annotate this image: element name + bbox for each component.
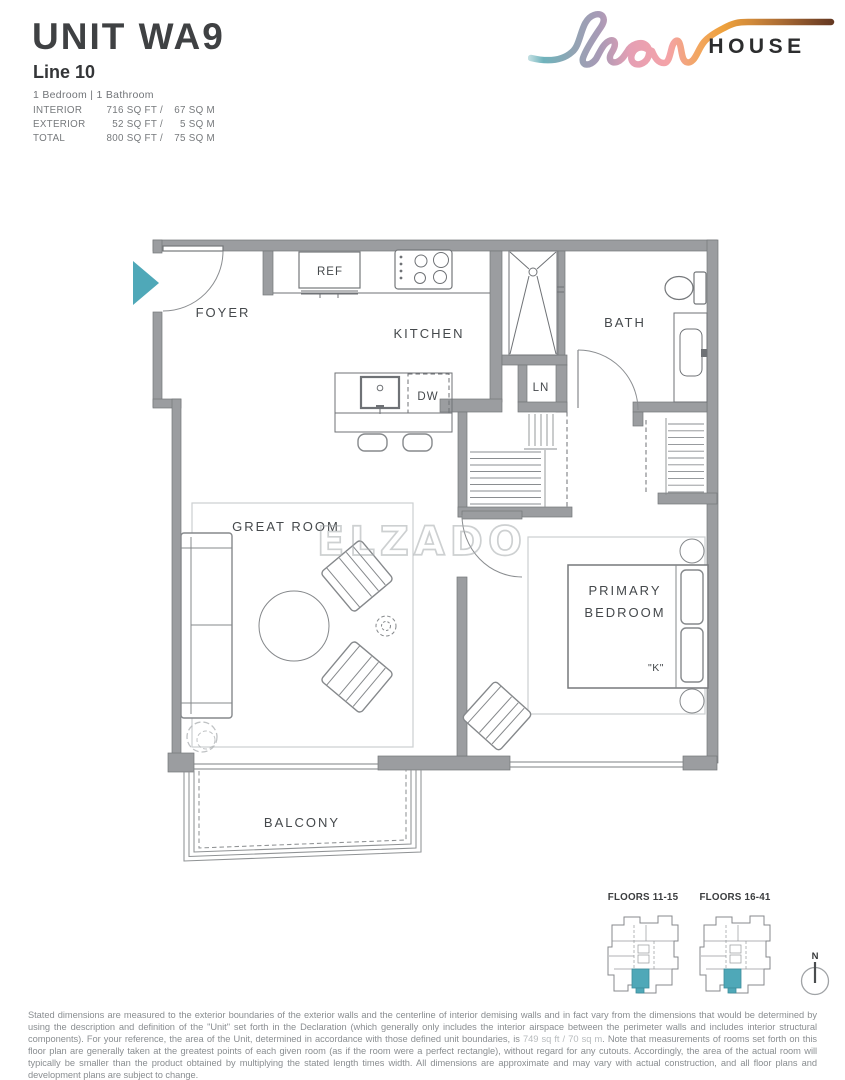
walk-in-closet [470, 412, 567, 507]
bedroom-closet [646, 418, 704, 495]
keyplan-1-label: FLOORS 11-15 [608, 892, 679, 903]
kitchen-label: KITCHEN [393, 326, 464, 341]
compass-north-label: N [812, 951, 819, 962]
foyer-label: FOYER [196, 305, 251, 320]
nightstand [680, 689, 704, 713]
entry-door [163, 246, 223, 311]
ref-label: REF [317, 266, 343, 278]
disclaimer-text: Stated dimensions are measured to the ex… [28, 1010, 817, 1080]
coffee-table [259, 591, 329, 661]
floor-plan-drawing: REF [0, 0, 845, 1080]
vanity [674, 313, 707, 402]
bar-stool [403, 434, 432, 451]
bed-size-label: "K" [648, 662, 664, 674]
linen-label: LN [533, 382, 550, 394]
toilet [665, 272, 706, 304]
keyplan-2-label: FLOORS 16-41 [700, 892, 771, 903]
refrigerator: REF [299, 252, 360, 298]
kitchen-counter: REF [273, 250, 490, 298]
shower [509, 251, 564, 355]
floor-plan-page: UNIT WA9 Line 10 1 Bedroom | 1 Bathroom … [0, 0, 845, 1080]
cooktop [395, 250, 452, 289]
keyplan-floors-16-41 [700, 916, 770, 993]
compass: N [802, 951, 829, 995]
bedroom-chair [462, 681, 533, 752]
dw-label: DW [417, 391, 438, 403]
sofa [181, 533, 232, 718]
keyplan-floors-11-15 [608, 916, 678, 993]
pillow [681, 628, 703, 682]
balcony-label: BALCONY [264, 815, 340, 830]
disclaimer-area-value: 749 sq ft / 70 sq m [523, 1034, 602, 1044]
primary-bedroom-label-line1: PRIMARY [589, 583, 662, 598]
nightstand [680, 539, 704, 563]
lounge-chair [320, 640, 393, 713]
island-sink [361, 377, 399, 414]
bath-door [578, 350, 638, 410]
entry-arrow-icon [133, 261, 159, 305]
plant-icon [376, 616, 396, 636]
bath-label: BATH [604, 315, 646, 330]
primary-bedroom-label-line2: BEDROOM [584, 605, 665, 620]
watermark: ELZADO [317, 519, 527, 565]
pillow [681, 570, 703, 624]
kitchen-island: DW [335, 373, 452, 451]
bar-stool [358, 434, 387, 451]
